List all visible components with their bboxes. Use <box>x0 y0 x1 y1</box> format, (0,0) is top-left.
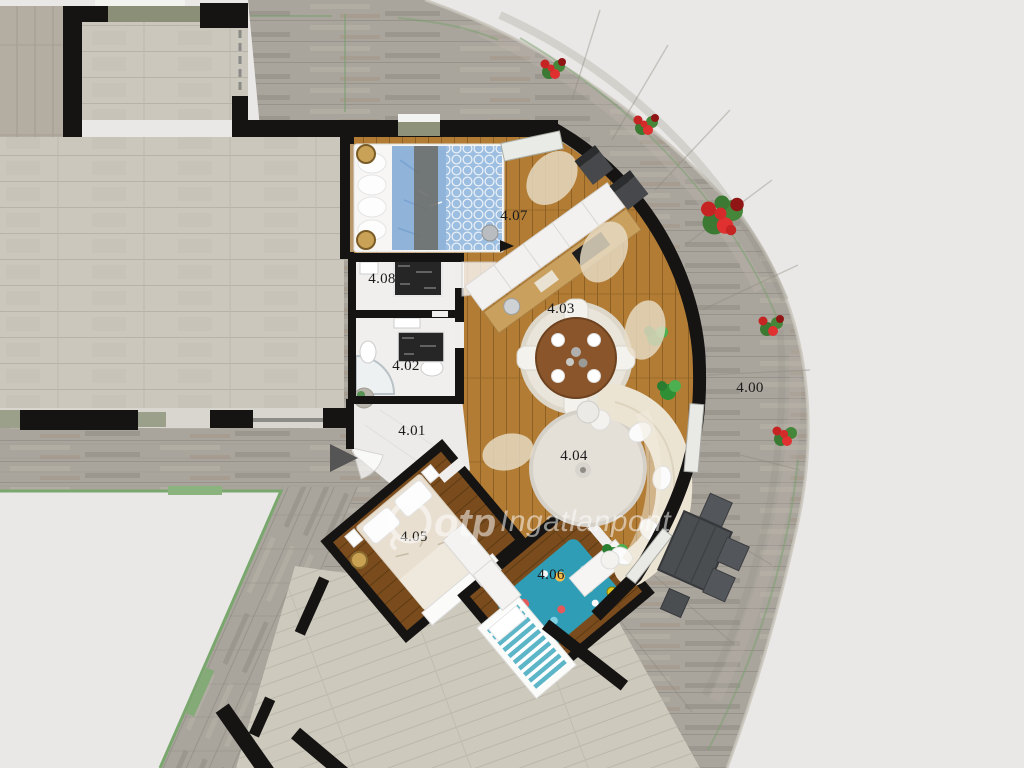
bedside-lamp <box>351 552 367 568</box>
plate <box>588 334 601 347</box>
window <box>398 122 440 136</box>
room-label-4-01: 4.01 <box>398 423 425 439</box>
room-label-4-02: 4.02 <box>392 358 419 374</box>
window <box>0 410 20 428</box>
bedside-lamp <box>357 231 375 249</box>
bedside-lamp <box>357 145 375 163</box>
floor-plan-screenshot: 4.00 4.01 4.02 4.03 4.04 4.05 4.06 4.07 … <box>0 0 1024 768</box>
bowl <box>482 225 498 241</box>
room-label-4-03: 4.03 <box>547 301 574 317</box>
lower-wall-band <box>0 408 347 430</box>
plate <box>552 334 565 347</box>
room-label-4-06: 4.06 <box>537 567 565 583</box>
room-label-4-08: 4.08 <box>368 271 395 287</box>
door-gap <box>455 322 464 348</box>
pillow <box>358 175 386 195</box>
side-table <box>577 401 599 423</box>
plate <box>552 370 565 383</box>
bed-runner <box>414 146 438 250</box>
room-label-4-07: 4.07 <box>500 208 528 224</box>
watermark-brand: otp <box>434 501 496 545</box>
watermark-name: Ingatlanpont <box>500 505 672 538</box>
dining-table <box>536 318 616 398</box>
room-label-4-00: 4.00 <box>736 380 763 396</box>
pillow <box>358 197 386 217</box>
floor-plan-svg: 4.00 4.01 4.02 4.03 4.04 4.05 4.06 4.07 … <box>0 0 1024 768</box>
sink <box>394 318 420 328</box>
toilet <box>360 341 376 363</box>
window <box>108 6 200 22</box>
neighbor-room-floor <box>0 6 63 137</box>
plate <box>588 370 601 383</box>
window <box>138 412 166 427</box>
pouf <box>601 551 619 569</box>
room-label-4-04: 4.04 <box>560 448 588 464</box>
